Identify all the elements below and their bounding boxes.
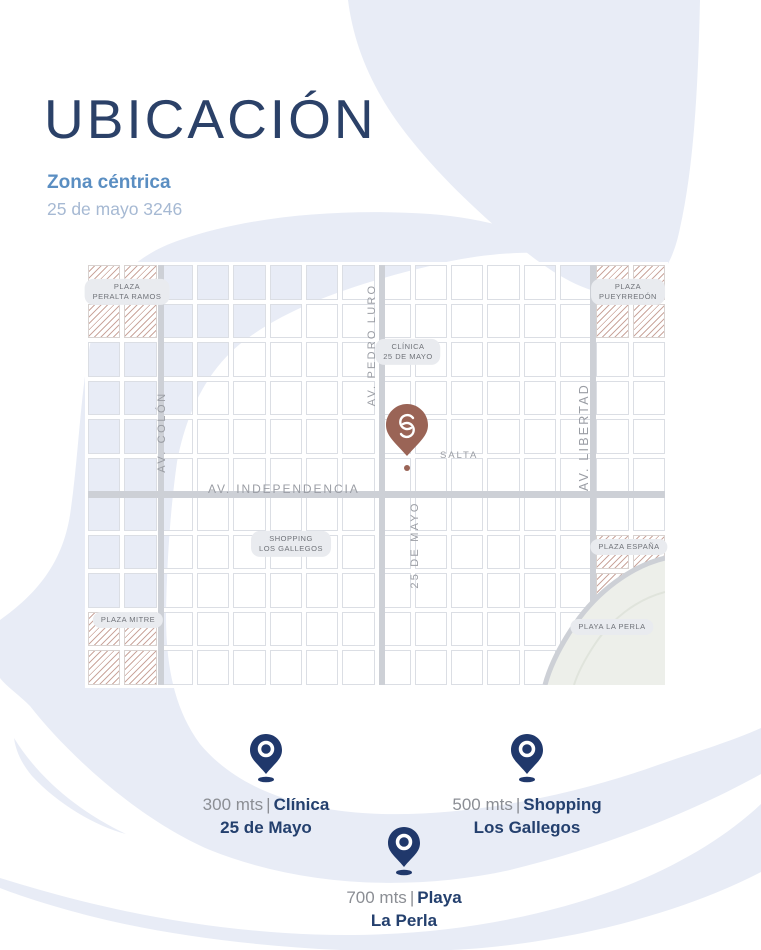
city-block [451,650,483,685]
road-av-independencia [88,491,665,498]
beach-area [515,540,665,685]
city-block [524,419,556,454]
city-block [197,496,229,531]
city-block [596,419,628,454]
city-block [342,612,374,647]
city-block [451,458,483,493]
city-block [161,612,193,647]
city-block [560,342,592,377]
place-label-line: PLAZA [93,282,162,292]
place-label-line: SHOPPING [259,534,323,544]
city-block [487,458,519,493]
city-block [233,342,265,377]
place-label-line: PLAZA ESPAÑA [598,542,659,552]
poi-name-line2: La Perla [284,910,524,932]
city-block [161,304,193,339]
map-pin-icon [248,733,284,783]
city-block [524,342,556,377]
city-block [270,650,302,685]
city-block [233,612,265,647]
header: UBICACIÓN Zona céntrica 25 de mayo 3246 [44,92,377,220]
city-map: AV. COLÓN AV. PEDRO LURO AV. LIBERTAD 25… [88,265,665,685]
poi-playa: 700 mts|Playa La Perla [284,826,524,932]
project-marker-icon [383,402,431,460]
poi-distance: 500 mts [452,795,512,814]
city-block [451,496,483,531]
city-block [342,419,374,454]
city-block [415,304,447,339]
street-label-av-libertad: AV. LIBERTAD [577,383,591,491]
city-block [124,535,156,570]
city-block [306,265,338,300]
poi-separator: | [407,888,417,907]
street-label-av-colon: AV. COLÓN [156,391,168,472]
city-block [88,458,120,493]
city-block [633,458,665,493]
city-block [487,419,519,454]
place-label-line: CLÍNICA [383,342,432,352]
plaza-block [633,304,665,339]
city-block [197,381,229,416]
city-block [88,342,120,377]
city-block [124,342,156,377]
city-block [88,381,120,416]
city-block [451,381,483,416]
city-block [560,304,592,339]
poi-separator: | [513,795,523,814]
city-block [633,496,665,531]
place-label-line: PUEYRREDÓN [599,292,657,302]
city-block [342,496,374,531]
street-label-salta: SALTA [440,450,478,461]
place-label-line: PLAZA MITRE [101,615,155,625]
city-block [197,650,229,685]
brochure-page: UBICACIÓN Zona céntrica 25 de mayo 3246 … [0,0,761,950]
city-block [197,342,229,377]
city-block [161,342,193,377]
city-block [596,496,628,531]
street-address: 25 de mayo 3246 [47,199,377,220]
city-block [233,650,265,685]
place-label-line: 25 DE MAYO [383,352,432,362]
city-block [306,612,338,647]
city-block [161,496,193,531]
poi-name: Playa [417,888,461,907]
city-block [451,535,483,570]
city-block [524,381,556,416]
city-block [161,573,193,608]
poi-shopping: 500 mts|Shopping Los Gallegos [407,733,647,839]
street-label-25-de-mayo: 25 DE MAYO [409,501,421,588]
city-block [161,650,193,685]
city-block [124,381,156,416]
city-block [342,573,374,608]
city-block [487,265,519,300]
city-block [451,304,483,339]
place-label-line: PLAYA LA PERLA [578,622,645,632]
city-block [88,535,120,570]
place-playa-la-perla: PLAYA LA PERLA [570,619,653,635]
plaza-block [88,650,120,685]
city-block [451,419,483,454]
city-block [161,535,193,570]
plaza-block [124,650,156,685]
zone-subtitle: Zona céntrica [47,172,377,194]
poi-clinica: 300 mts|Clínica 25 de Mayo [146,733,386,839]
city-block [197,573,229,608]
city-block [233,419,265,454]
map-pin-icon [509,733,545,783]
city-block [233,381,265,416]
city-block [524,304,556,339]
place-plaza-peralta-ramos: PLAZA PERALTA RAMOS [85,279,170,305]
poi-separator: | [263,795,273,814]
city-block [270,381,302,416]
city-block [524,265,556,300]
city-block [270,573,302,608]
city-block [233,265,265,300]
city-block [415,458,447,493]
place-label-line: PERALTA RAMOS [93,292,162,302]
city-block [306,573,338,608]
city-block [306,342,338,377]
plaza-block [88,304,120,339]
place-plaza-pueyrredon: PLAZA PUEYRREDÓN [591,279,665,305]
place-label-line: PLAZA [599,282,657,292]
street-label-av-independencia: AV. INDEPENDENCIA [208,482,360,496]
city-block [270,265,302,300]
city-block [633,419,665,454]
city-block [270,304,302,339]
city-block [342,535,374,570]
place-shopping-los-gallegos: SHOPPING LOS GALLEGOS [251,531,331,557]
place-clinica-25-de-mayo: CLÍNICA 25 DE MAYO [375,339,440,365]
city-block [197,535,229,570]
poi-distance: 300 mts [203,795,263,814]
city-block [487,342,519,377]
place-label-line: LOS GALLEGOS [259,544,323,554]
city-block [451,265,483,300]
city-block [270,342,302,377]
city-block [197,612,229,647]
city-block [342,650,374,685]
city-block [560,496,592,531]
city-block [88,573,120,608]
place-plaza-espana: PLAZA ESPAÑA [590,539,667,555]
map-pin-icon [386,826,422,876]
city-block [88,419,120,454]
city-block [524,496,556,531]
city-block [451,612,483,647]
city-block [415,265,447,300]
city-block [233,496,265,531]
city-block [270,612,302,647]
road-av-pedro-luro [379,265,385,685]
poi-name: Clínica [274,795,330,814]
city-block [124,496,156,531]
poi-name: Shopping [523,795,601,814]
city-block [306,496,338,531]
poi-text: 700 mts|Playa La Perla [284,887,524,932]
city-block [596,342,628,377]
city-block [197,265,229,300]
city-block [306,419,338,454]
city-block [306,650,338,685]
city-block [124,573,156,608]
marker-ground-dot [404,465,410,471]
city-block [451,342,483,377]
city-block [124,419,156,454]
city-block [415,650,447,685]
city-block [270,419,302,454]
city-block [306,304,338,339]
city-block [487,304,519,339]
plaza-block [596,304,628,339]
city-block [560,265,592,300]
city-block [197,304,229,339]
city-block [233,304,265,339]
page-title: UBICACIÓN [44,92,377,147]
city-block [487,496,519,531]
poi-distance: 700 mts [346,888,406,907]
city-block [451,573,483,608]
city-block [270,496,302,531]
city-block [633,381,665,416]
city-block [596,458,628,493]
city-block [124,458,156,493]
city-block [633,342,665,377]
city-block [88,496,120,531]
city-block [306,381,338,416]
plaza-block [124,304,156,339]
place-plaza-mitre: PLAZA MITRE [93,612,163,628]
city-block [415,612,447,647]
city-block [524,458,556,493]
city-block [197,419,229,454]
city-block [233,573,265,608]
city-block [487,381,519,416]
city-block [596,381,628,416]
